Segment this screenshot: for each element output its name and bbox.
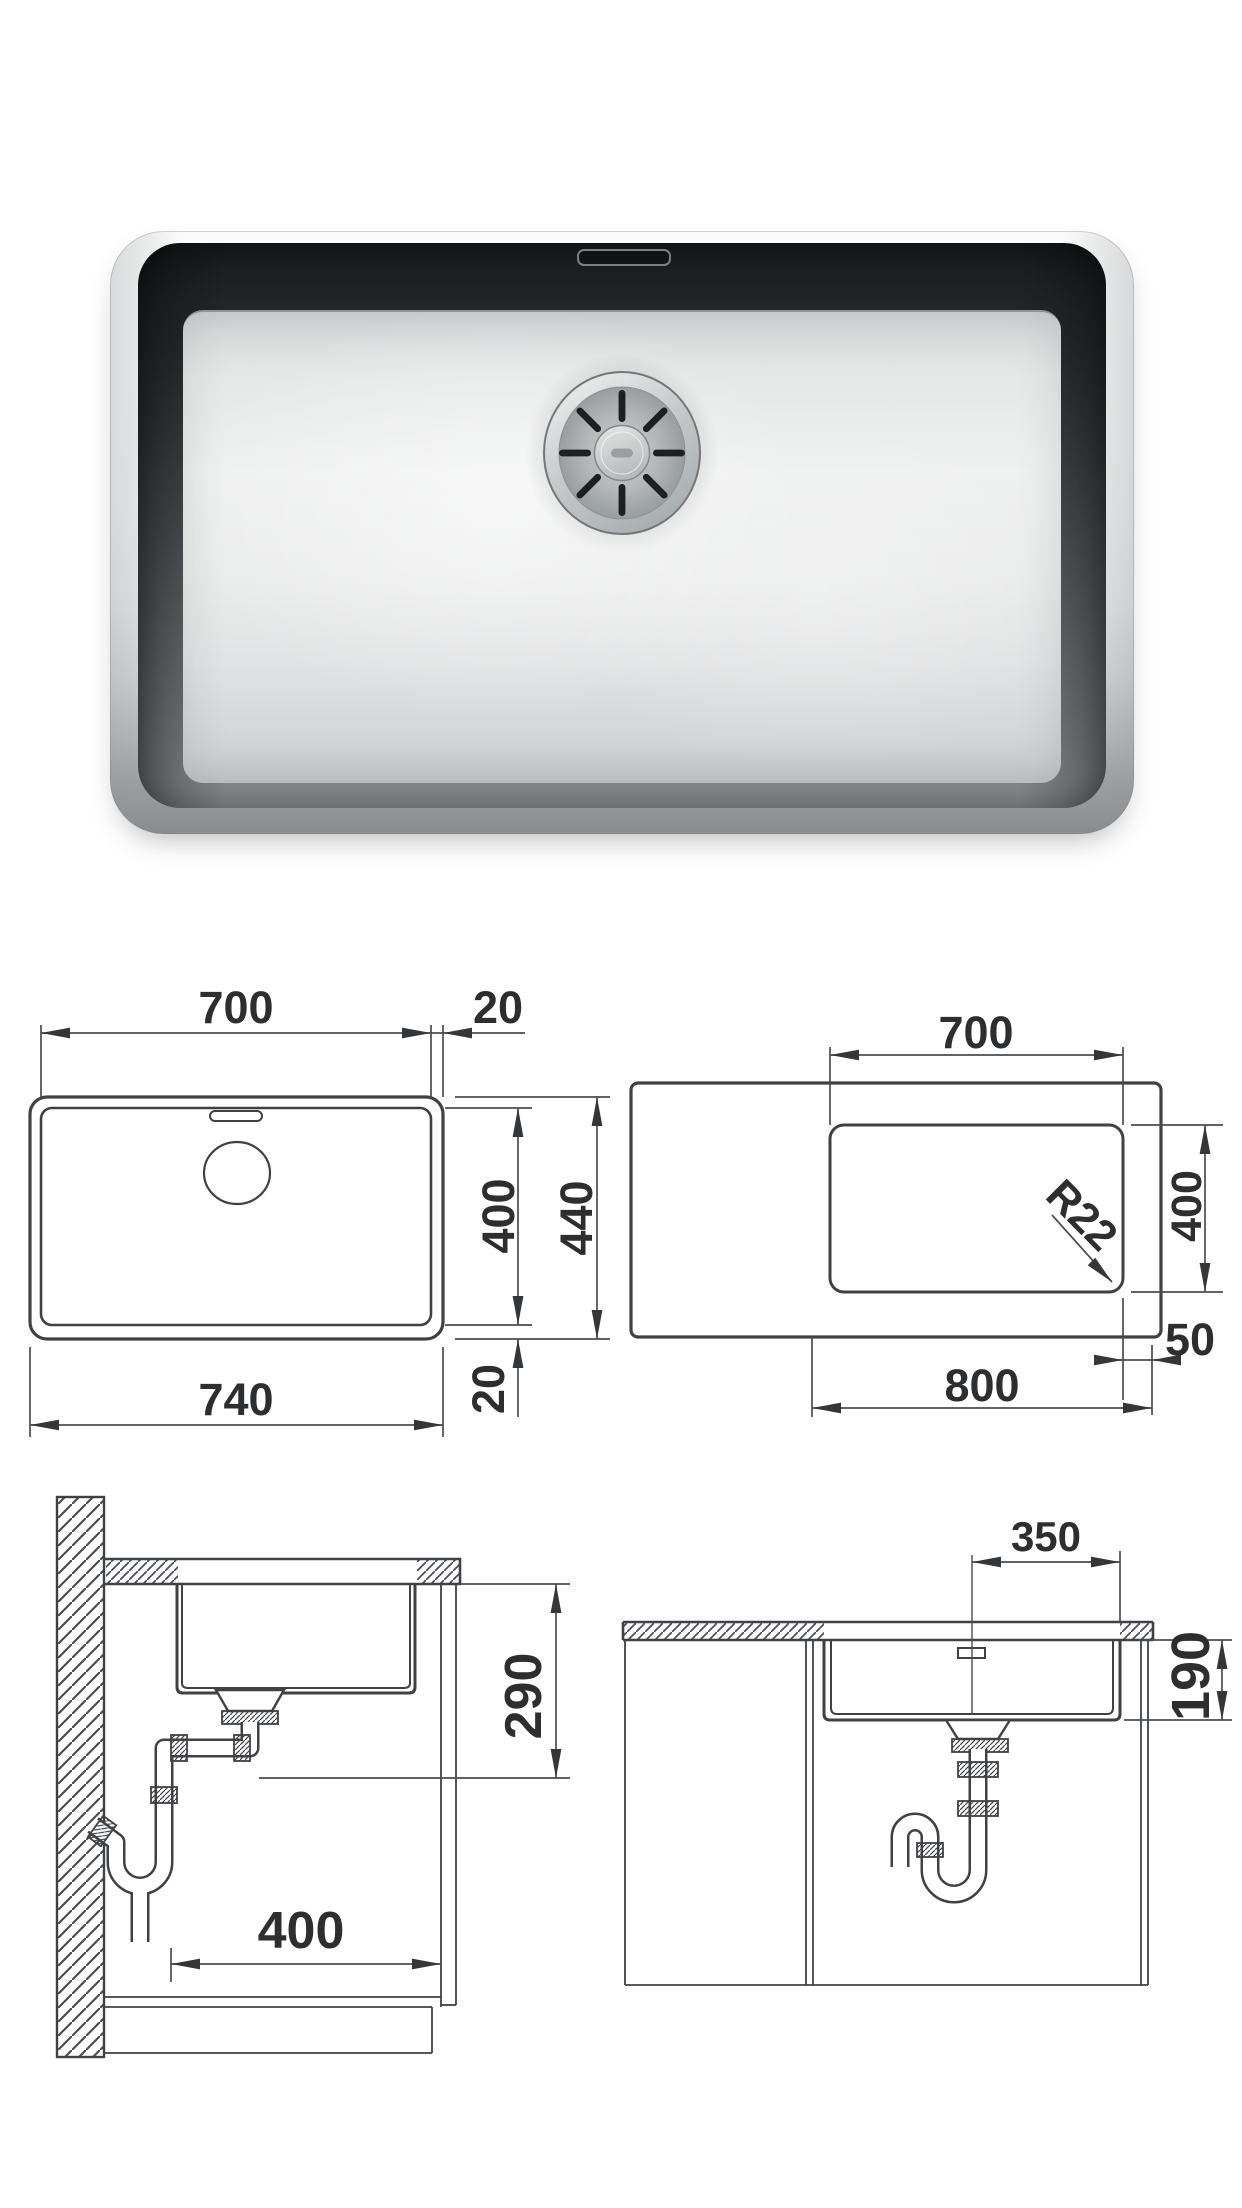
dim-r22: R22 bbox=[1037, 1171, 1127, 1261]
dim-190: 190 bbox=[1161, 1631, 1221, 1721]
drawing-top-view: 700 20 400 440 740 20 bbox=[20, 985, 620, 1445]
wall-section bbox=[57, 1497, 104, 2057]
dim-700-cutout: 700 bbox=[938, 1015, 1013, 1058]
spec-sheet: 700 20 400 440 740 20 700 400 bbox=[0, 0, 1242, 2208]
dim-440-right: 440 bbox=[551, 1180, 602, 1255]
overflow-slot bbox=[577, 249, 671, 266]
dim-20-top: 20 bbox=[473, 985, 523, 1033]
counter-front bbox=[623, 1622, 1153, 1640]
drain-plan bbox=[204, 1142, 270, 1204]
counter-section bbox=[104, 1559, 460, 1584]
overflow-slot-plan bbox=[210, 1111, 262, 1121]
dim-20-bottom: 20 bbox=[463, 1364, 514, 1414]
sink-outline-top-view bbox=[30, 1097, 443, 1339]
dimensions-side-section bbox=[171, 1584, 570, 1982]
drawing-front-section: 350 190 bbox=[600, 1515, 1242, 2035]
drawing-side-section: 290 400 bbox=[30, 1490, 590, 2085]
dim-700-top: 700 bbox=[198, 985, 273, 1033]
drain-and-trap-side bbox=[88, 1690, 284, 1942]
dim-350: 350 bbox=[1011, 1515, 1081, 1560]
bowl-section-side bbox=[177, 1584, 415, 1693]
dim-400-right: 400 bbox=[473, 1178, 524, 1253]
strainer-drain-icon bbox=[522, 349, 722, 557]
drain-and-trap-front bbox=[900, 1720, 1010, 1894]
dim-290: 290 bbox=[495, 1653, 553, 1740]
dim-50: 50 bbox=[1165, 1314, 1215, 1365]
dim-800: 800 bbox=[944, 1360, 1019, 1411]
dim-400-side: 400 bbox=[258, 1902, 345, 1960]
drawing-cutout-plan: 700 400 R22 50 800 bbox=[620, 1015, 1242, 1435]
sink-photo bbox=[110, 231, 1134, 834]
dim-740-bottom: 740 bbox=[198, 1374, 273, 1425]
dim-400-cutout: 400 bbox=[1163, 1170, 1211, 1242]
cabinet-front bbox=[625, 1640, 1148, 1985]
